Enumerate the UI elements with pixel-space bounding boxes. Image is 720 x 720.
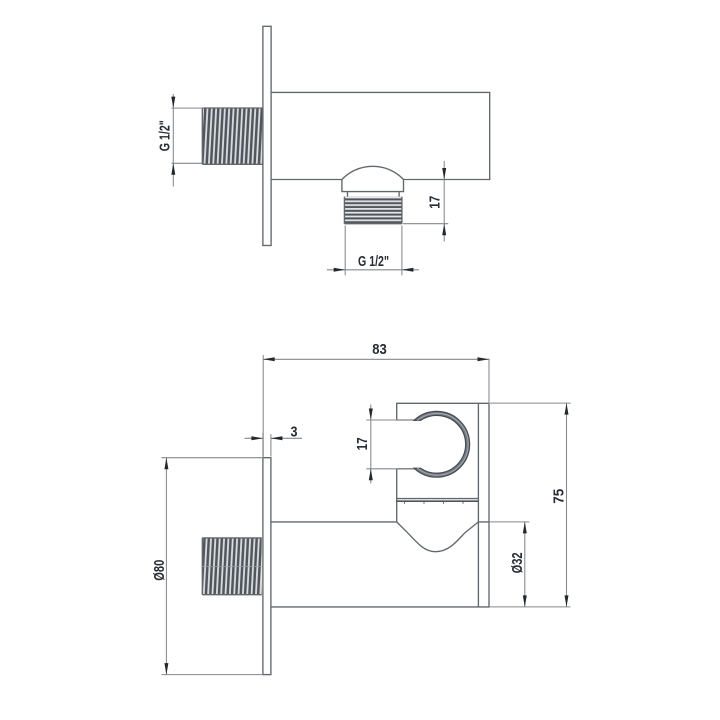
svg-text:Ø32: Ø32: [510, 552, 526, 573]
svg-text:17: 17: [427, 196, 443, 209]
svg-text:G 1/2": G 1/2": [358, 254, 389, 270]
svg-text:83: 83: [372, 342, 387, 358]
svg-text:75: 75: [552, 489, 568, 504]
svg-text:17: 17: [355, 437, 371, 450]
svg-text:Ø80: Ø80: [152, 560, 168, 581]
svg-text:3: 3: [291, 425, 298, 441]
svg-text:G 1/2": G 1/2": [157, 120, 173, 151]
